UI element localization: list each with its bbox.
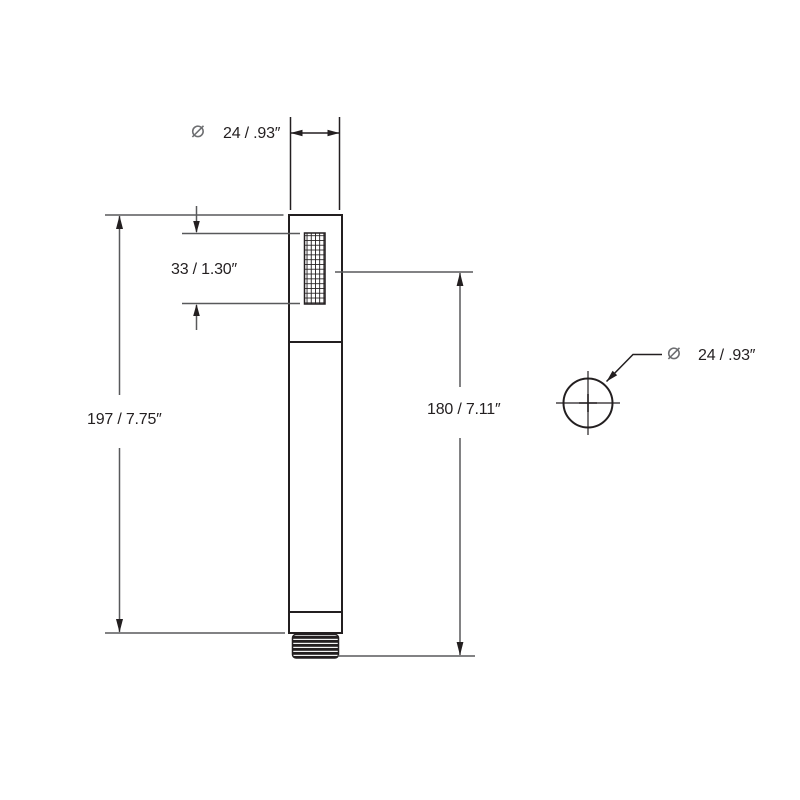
spray-to-outlet-label: 180 / 7.11″ <box>427 402 500 418</box>
side-diameter-label: 24 / .93″ <box>698 348 755 364</box>
dimension-top-diameter <box>291 117 340 210</box>
arrowhead-right <box>328 130 340 137</box>
arrowhead-up <box>116 216 123 230</box>
front-view <box>289 215 342 658</box>
spray-face-mesh <box>305 233 326 304</box>
leader-line <box>607 355 663 382</box>
arrowhead-down <box>116 619 123 633</box>
top-diameter-label: 24 / .93″ <box>223 126 280 142</box>
drawing-geometry <box>0 0 800 800</box>
overall-length-label: 197 / 7.75″ <box>87 412 162 428</box>
arrowhead-up <box>457 273 464 287</box>
technical-drawing-canvas: ⌀ 24 / .93″ 33 / 1.30″ 197 / 7.75″ 180 /… <box>0 0 800 800</box>
arrowhead-up <box>193 304 200 316</box>
arrowhead-left <box>291 130 303 137</box>
top-view <box>556 355 662 436</box>
outlet-threads <box>293 635 339 659</box>
arrowhead-down <box>193 221 200 233</box>
diameter-icon: ⌀ <box>191 119 205 142</box>
spray-face-length-label: 33 / 1.30″ <box>171 262 237 278</box>
dimension-spray-to-outlet <box>335 272 475 656</box>
diameter-icon: ⌀ <box>667 341 681 364</box>
arrowhead-down <box>457 642 464 656</box>
